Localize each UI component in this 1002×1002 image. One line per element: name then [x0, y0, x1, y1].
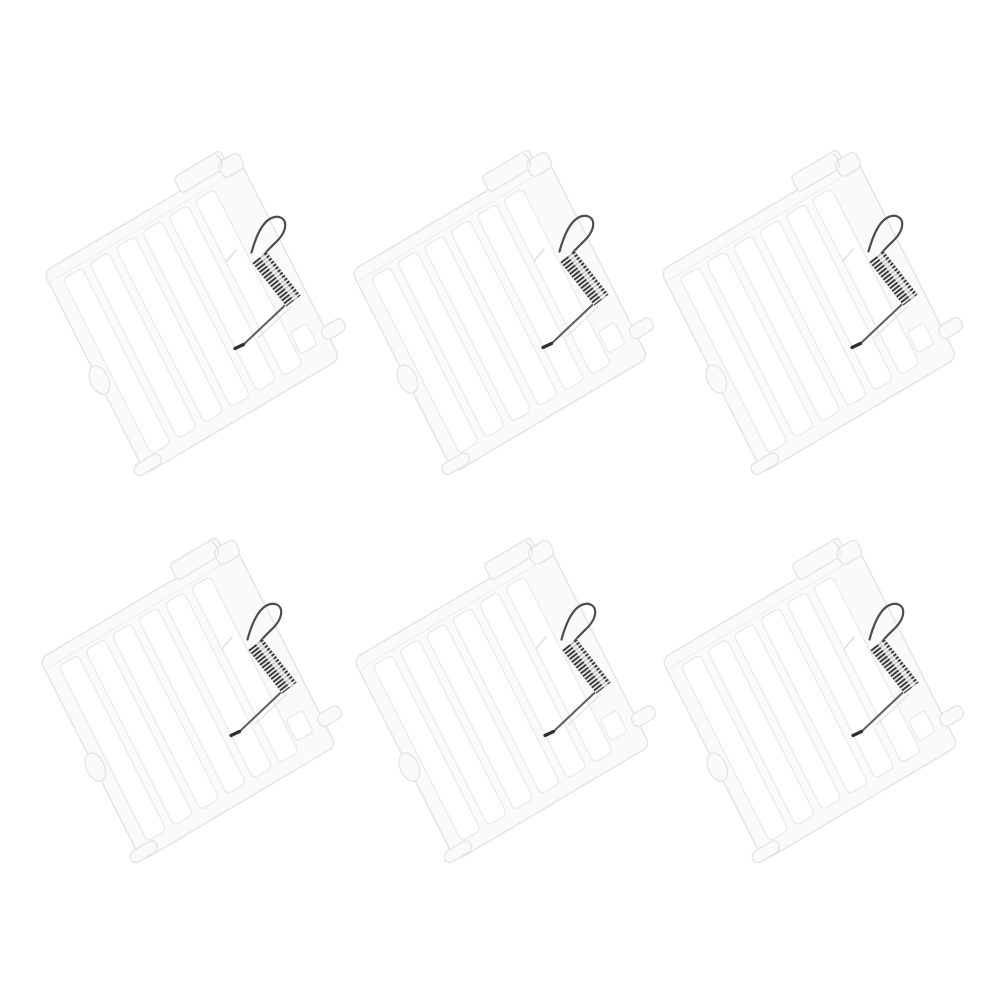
- product-collage-image: [0, 0, 1002, 1002]
- product-item-4: [25, 520, 353, 865]
- product-item-2: [337, 132, 665, 477]
- product-item-5: [339, 520, 667, 865]
- product-item-1: [29, 133, 357, 478]
- product-item-6: [647, 520, 975, 865]
- product-item-3: [646, 132, 974, 477]
